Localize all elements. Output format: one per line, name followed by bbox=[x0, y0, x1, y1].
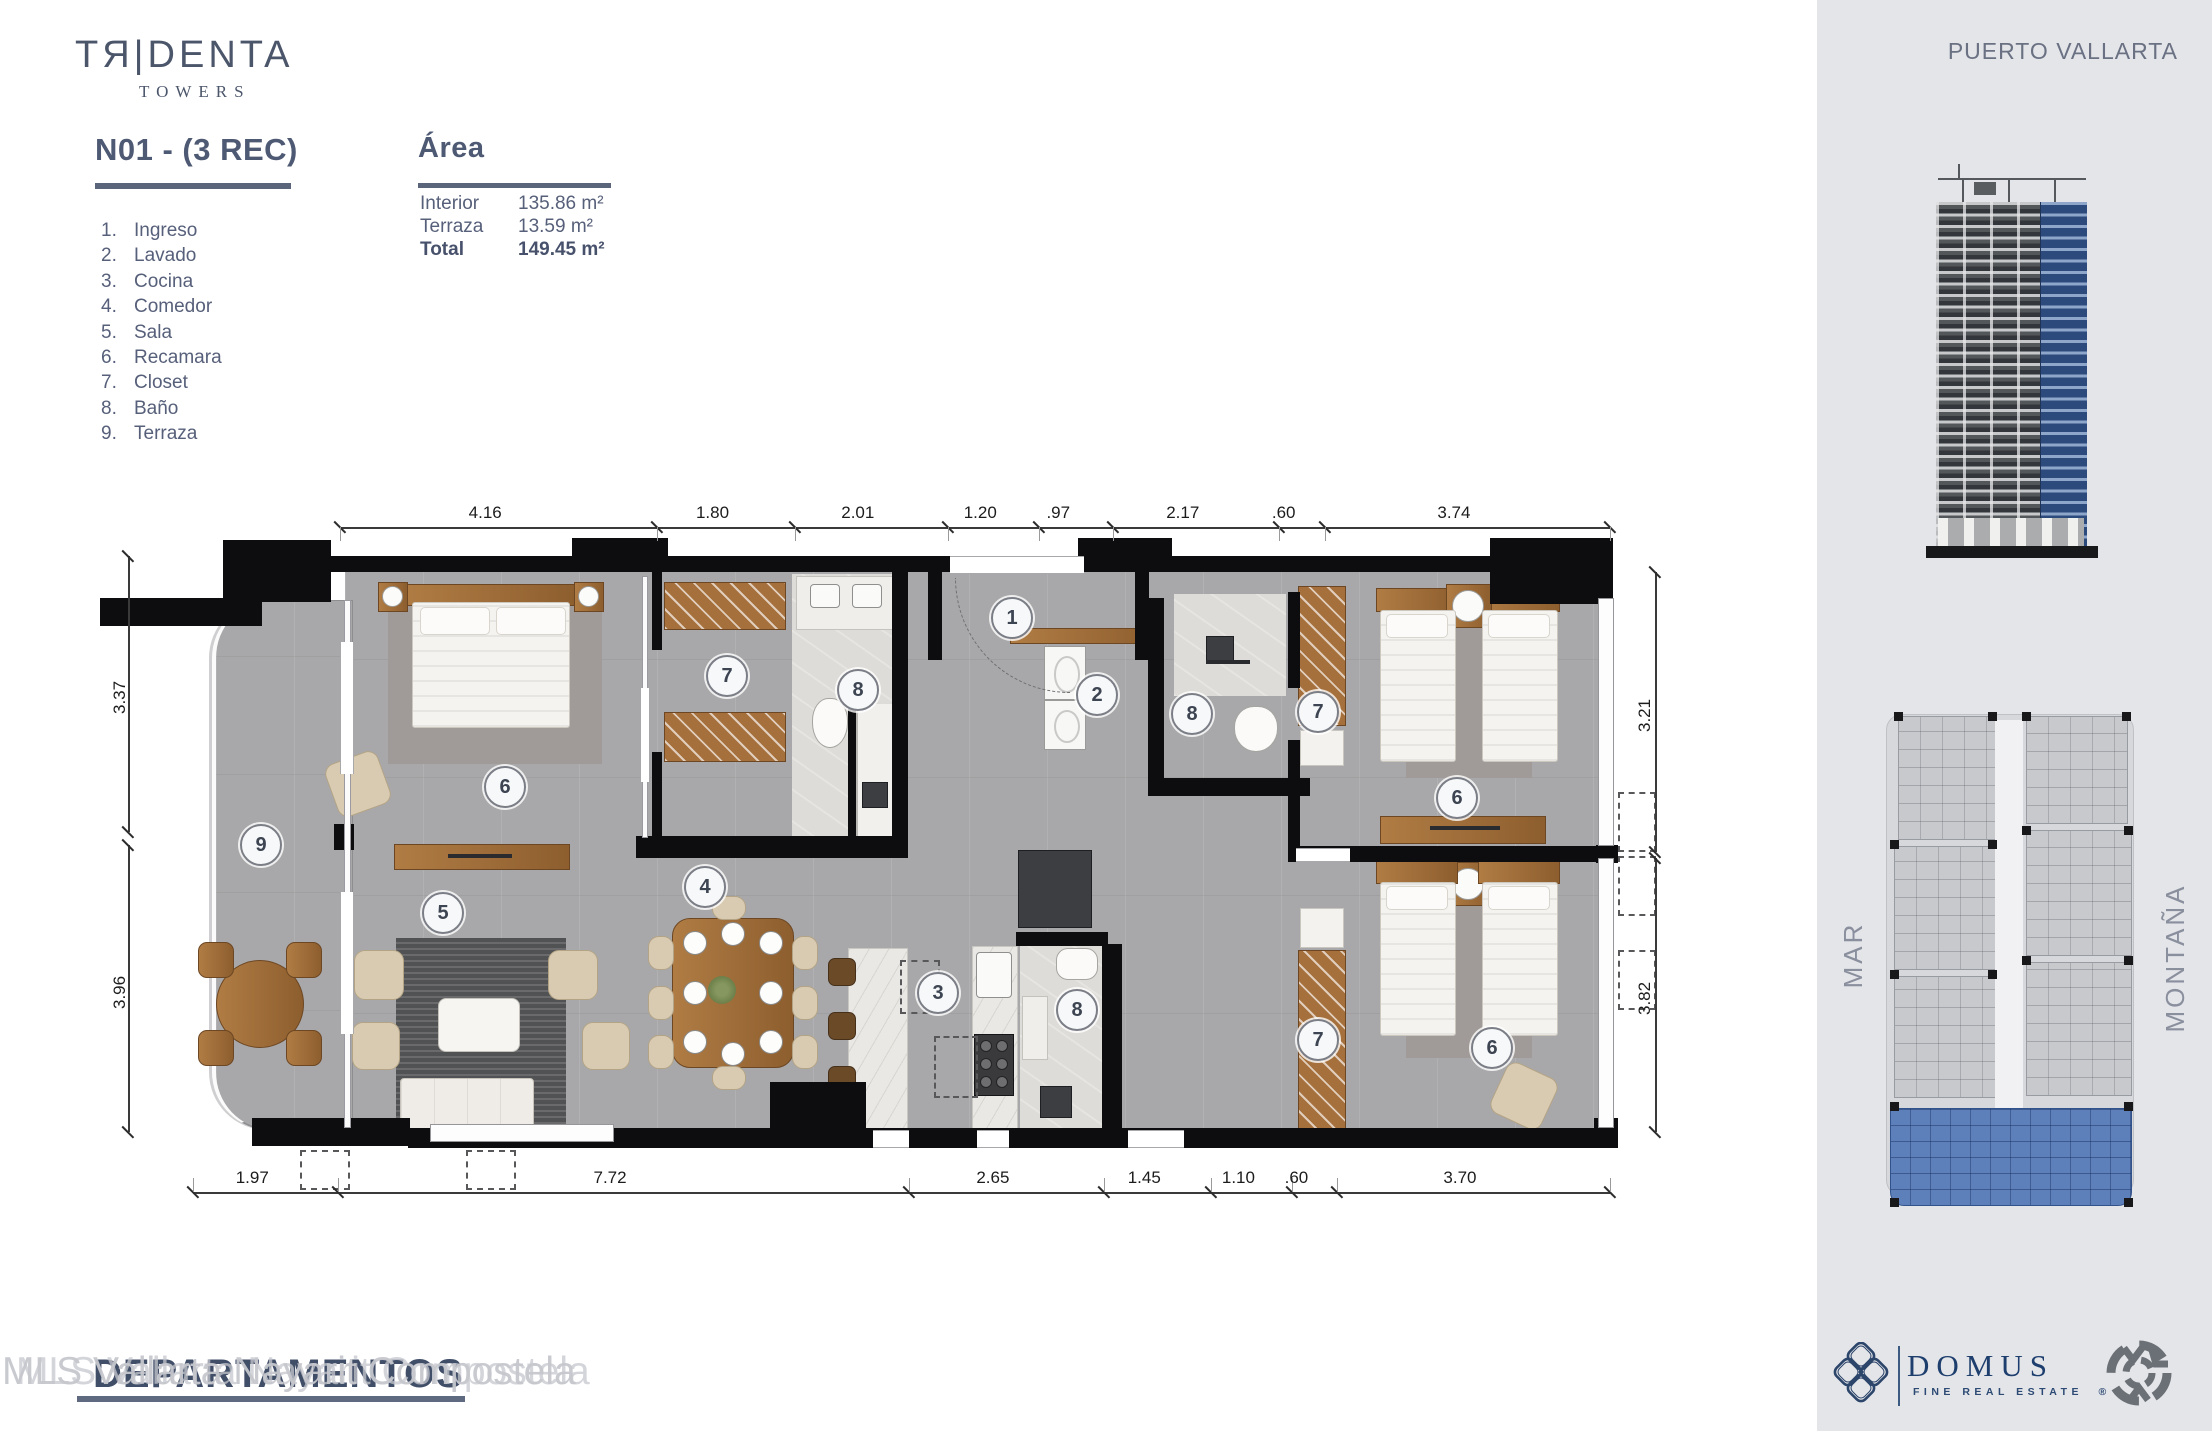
armchair bbox=[354, 950, 404, 1000]
dimension-line bbox=[1655, 572, 1657, 852]
burner bbox=[980, 1040, 992, 1052]
shower-arm bbox=[1206, 660, 1250, 664]
pillow bbox=[420, 607, 490, 635]
cabinet bbox=[1300, 908, 1344, 948]
domus-name: DOMUS bbox=[1907, 1348, 2054, 1384]
pillow bbox=[1488, 614, 1550, 638]
tower-base bbox=[1926, 546, 2098, 558]
room-badge-6: 6 bbox=[1471, 1027, 1513, 1069]
dimension-label: 3.74 bbox=[1437, 503, 1497, 523]
dimension-label: 3.82 bbox=[1635, 975, 1655, 1015]
dimension-label: .60 bbox=[1285, 1168, 1345, 1188]
dimension-label: 2.01 bbox=[841, 503, 901, 523]
dimension-label: 1.20 bbox=[964, 503, 1024, 523]
room-badge-6: 6 bbox=[1436, 777, 1478, 819]
soundbar bbox=[1430, 826, 1500, 830]
master-shower bbox=[856, 704, 896, 854]
soundbar bbox=[448, 854, 512, 858]
wall bbox=[892, 572, 908, 856]
dimension-label: 2.65 bbox=[976, 1168, 1036, 1188]
compass-montana: MONTAÑA bbox=[2160, 868, 2200, 1048]
domus-emblem bbox=[1833, 1342, 1889, 1404]
wall bbox=[255, 556, 1613, 572]
dimension-label: 3.96 bbox=[110, 969, 130, 1009]
refrigerator bbox=[1018, 850, 1092, 928]
toilet bbox=[1234, 706, 1278, 752]
sliding-door bbox=[340, 892, 354, 1034]
shower-bench bbox=[862, 782, 888, 808]
location-label: PUERTO VALLARTA bbox=[1948, 38, 2178, 65]
keyplan-unit bbox=[2026, 716, 2128, 824]
dimension-extension bbox=[1610, 527, 1611, 541]
tower-support bbox=[2008, 180, 2010, 202]
sink bbox=[810, 584, 840, 608]
wall-column bbox=[223, 540, 331, 602]
plate bbox=[759, 931, 783, 955]
door-opening bbox=[1296, 848, 1350, 862]
room-badge-8: 8 bbox=[1171, 693, 1213, 735]
dimension-extension bbox=[1325, 527, 1326, 541]
wall bbox=[100, 598, 262, 626]
terrace-chair bbox=[286, 1030, 322, 1066]
partner-emblem bbox=[2100, 1334, 2178, 1412]
dining-chair bbox=[648, 936, 674, 970]
room-badge-7: 7 bbox=[1297, 691, 1339, 733]
kitchen-sink bbox=[976, 952, 1012, 998]
wall bbox=[252, 1118, 410, 1146]
armchair bbox=[548, 950, 598, 1000]
entry-opening bbox=[950, 556, 1084, 574]
domus-tagline-text: FINE REAL ESTATE bbox=[1913, 1386, 2083, 1398]
door-opening bbox=[640, 688, 650, 782]
shower-head bbox=[1040, 1086, 1072, 1118]
wall bbox=[636, 836, 908, 858]
logo-divider bbox=[1898, 1346, 1900, 1406]
tv-console bbox=[1380, 816, 1546, 844]
keyplan-unit bbox=[1898, 716, 1996, 840]
window bbox=[977, 1130, 1009, 1148]
dining-chair bbox=[648, 1035, 674, 1069]
tower-blue-units bbox=[2040, 202, 2087, 548]
wall bbox=[1102, 944, 1122, 1136]
ac-unit-outline bbox=[1618, 792, 1656, 852]
caption-rule bbox=[77, 1396, 465, 1402]
dimension-label: 3.37 bbox=[110, 674, 130, 714]
plate bbox=[759, 1030, 783, 1054]
pillow bbox=[496, 607, 566, 635]
terrace-chair bbox=[286, 942, 322, 978]
key-plan bbox=[1880, 706, 2138, 1208]
centerpiece-plant bbox=[708, 976, 736, 1004]
wall bbox=[1288, 592, 1300, 688]
room-badge-3: 3 bbox=[917, 972, 959, 1014]
dimension-extension bbox=[1211, 1178, 1212, 1192]
wall-column bbox=[1490, 538, 1613, 604]
dimension-extension bbox=[340, 527, 341, 541]
window bbox=[873, 1130, 909, 1148]
room-badge-4: 4 bbox=[684, 866, 726, 908]
dimension-extension bbox=[1039, 527, 1040, 541]
dining-chair bbox=[792, 1035, 818, 1069]
dimension-line bbox=[193, 1192, 1610, 1194]
toilet bbox=[1056, 948, 1098, 980]
mls-watermark-echo: MLS Vallarta Nayarit Compostela bbox=[16, 1350, 590, 1394]
plate bbox=[683, 1030, 707, 1054]
dimension-line bbox=[340, 527, 1610, 529]
wall bbox=[1135, 572, 1149, 660]
ac-unit-outline bbox=[466, 1150, 516, 1190]
wall-column bbox=[1078, 538, 1172, 572]
burner bbox=[996, 1076, 1008, 1088]
burner bbox=[980, 1076, 992, 1088]
lamp bbox=[382, 586, 403, 607]
window bbox=[1598, 598, 1614, 846]
pillow bbox=[1386, 886, 1448, 910]
wardrobe bbox=[664, 712, 786, 762]
domus-tagline: FINE REAL ESTATE ® bbox=[1913, 1386, 2106, 1398]
bar-stool bbox=[828, 958, 856, 986]
plate bbox=[759, 981, 783, 1005]
keyplan-unit bbox=[2026, 962, 2132, 1096]
tower-rooftop-box bbox=[1974, 182, 1996, 195]
wall-partition bbox=[848, 700, 856, 856]
dining-chair bbox=[648, 986, 674, 1020]
keyplan-unit bbox=[2026, 830, 2132, 956]
plate bbox=[683, 981, 707, 1005]
lamp bbox=[1452, 590, 1484, 622]
ac-unit-outline bbox=[1618, 856, 1656, 916]
dimension-label: 1.10 bbox=[1222, 1168, 1282, 1188]
terrace-chair bbox=[198, 942, 234, 978]
room-badge-8: 8 bbox=[837, 669, 879, 711]
burner bbox=[996, 1040, 1008, 1052]
keyplan-unit bbox=[1894, 846, 1996, 970]
room-badge-5: 5 bbox=[422, 892, 464, 934]
cabinet bbox=[1300, 730, 1344, 766]
wardrobe bbox=[664, 582, 786, 630]
toilet bbox=[812, 698, 848, 748]
dimension-label: 1.80 bbox=[696, 503, 756, 523]
dining-chair bbox=[792, 986, 818, 1020]
dimension-line bbox=[1655, 858, 1657, 1132]
room-badge-7: 7 bbox=[1297, 1019, 1339, 1061]
dining-chair bbox=[712, 1066, 746, 1090]
dimension-extension bbox=[795, 527, 796, 541]
dimension-extension bbox=[657, 527, 658, 541]
wall bbox=[1288, 740, 1300, 846]
tower-illustration bbox=[1928, 168, 2096, 562]
dimension-extension bbox=[193, 1178, 194, 1192]
pillow bbox=[1488, 886, 1550, 910]
keyplan-highlighted-unit bbox=[1890, 1108, 2132, 1206]
dining-chair bbox=[792, 936, 818, 970]
sliding-door bbox=[340, 642, 354, 774]
wall-column bbox=[572, 538, 668, 572]
room-badge-1: 1 bbox=[991, 597, 1033, 639]
plate bbox=[721, 1042, 745, 1066]
tower-support bbox=[2054, 180, 2056, 202]
sink bbox=[852, 584, 882, 608]
burner bbox=[980, 1058, 992, 1070]
tower-roofline bbox=[1938, 178, 2086, 180]
sidebar: PUERTO VALLARTA MAR MONTAÑA bbox=[1817, 0, 2212, 1431]
bar-stool bbox=[828, 1012, 856, 1040]
ac-unit-outline bbox=[300, 1150, 350, 1190]
armchair bbox=[352, 1022, 400, 1070]
lamp bbox=[578, 586, 599, 607]
dimension-label: 2.17 bbox=[1166, 503, 1226, 523]
wall bbox=[652, 752, 662, 836]
window bbox=[1598, 858, 1614, 1128]
tower-support bbox=[1962, 180, 1964, 202]
dimension-label: 7.72 bbox=[593, 1168, 653, 1188]
dimension-extension bbox=[1104, 1178, 1105, 1192]
dimension-label: 1.97 bbox=[236, 1168, 296, 1188]
coffee-table bbox=[438, 998, 520, 1052]
dimension-extension bbox=[909, 1178, 910, 1192]
room-badge-2: 2 bbox=[1076, 674, 1118, 716]
bath3-vanity bbox=[1022, 996, 1048, 1060]
plate bbox=[683, 931, 707, 955]
terrace-chair bbox=[198, 1030, 234, 1066]
dimension-label: 3.21 bbox=[1635, 692, 1655, 732]
wall bbox=[652, 572, 662, 650]
keyplan-unit bbox=[1894, 976, 1996, 1098]
wall bbox=[1148, 598, 1164, 796]
dimension-extension bbox=[338, 1178, 339, 1192]
burner bbox=[996, 1058, 1008, 1070]
dimension-label: .60 bbox=[1272, 503, 1332, 523]
dimension-extension bbox=[948, 527, 949, 541]
plate bbox=[721, 922, 745, 946]
wall bbox=[1016, 932, 1108, 946]
tower-mast bbox=[1958, 164, 1960, 180]
room-badge-8: 8 bbox=[1056, 989, 1098, 1031]
dimension-label: 3.70 bbox=[1443, 1168, 1503, 1188]
pillow bbox=[1386, 614, 1448, 638]
compass-mar: MAR bbox=[1838, 895, 1878, 1015]
bed-headboard bbox=[1376, 860, 1458, 884]
dishwasher-outline bbox=[934, 1036, 978, 1098]
dimension-label: .97 bbox=[1046, 503, 1106, 523]
dimension-extension bbox=[1113, 527, 1114, 541]
armchair bbox=[582, 1022, 630, 1070]
room-badge-9: 9 bbox=[240, 824, 282, 866]
room-badge-6: 6 bbox=[484, 766, 526, 808]
tower-ground-floor bbox=[1938, 518, 2084, 548]
room-badge-7: 7 bbox=[706, 655, 748, 697]
bed-headboard bbox=[1478, 860, 1560, 884]
dimension-extension bbox=[1610, 1178, 1611, 1192]
wall bbox=[928, 572, 942, 660]
window bbox=[1128, 1130, 1184, 1148]
dimension-label: 4.16 bbox=[469, 503, 529, 523]
dimension-extension bbox=[1279, 527, 1280, 541]
window bbox=[430, 1124, 614, 1142]
dimension-label: 1.45 bbox=[1128, 1168, 1188, 1188]
